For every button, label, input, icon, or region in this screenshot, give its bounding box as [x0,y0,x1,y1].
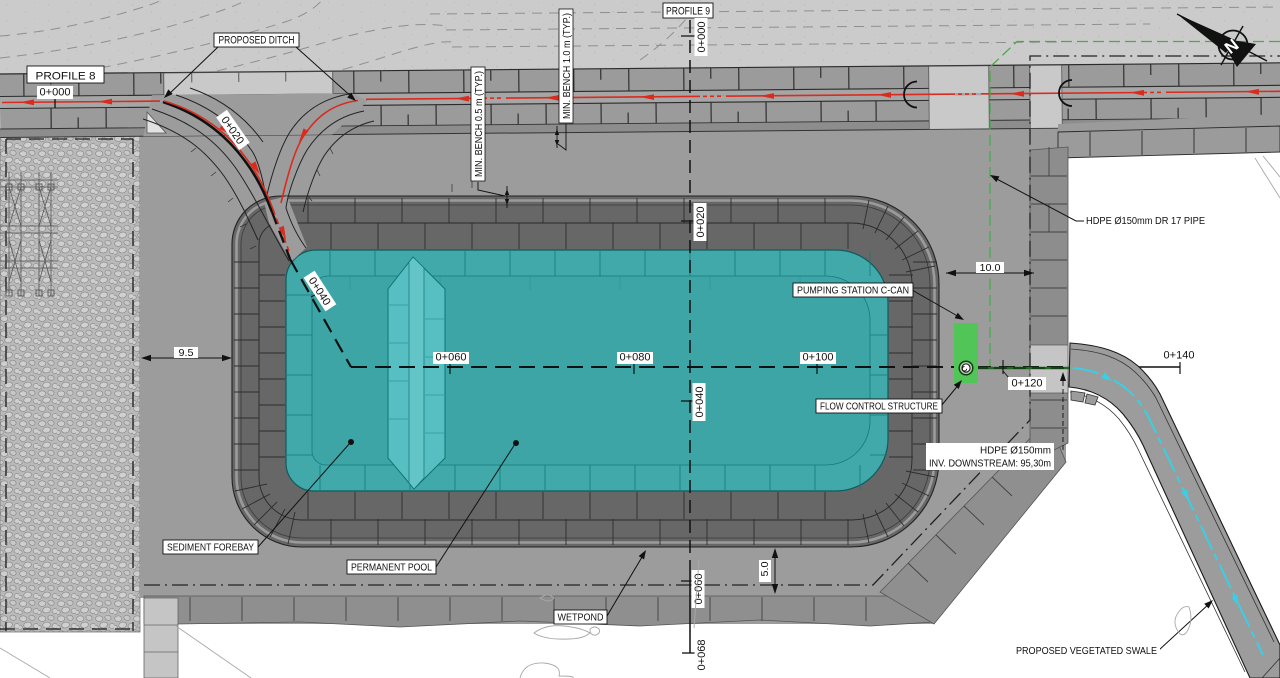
svg-text:5.0: 5.0 [759,561,771,576]
svg-text:PROFILE 9: PROFILE 9 [666,6,710,18]
svg-text:FLOW CONTROL STRUCTURE: FLOW CONTROL STRUCTURE [820,402,938,413]
svg-text:PERMANENT POOL: PERMANENT POOL [351,563,432,574]
svg-text:0+000: 0+000 [40,87,71,99]
svg-text:10.0: 10.0 [980,262,1001,274]
svg-text:0+100: 0+100 [803,352,834,364]
svg-text:0+080: 0+080 [620,352,651,364]
svg-text:0+020: 0+020 [695,207,707,238]
svg-text:PROPOSED VEGETATED SWALE: PROPOSED VEGETATED SWALE [1016,646,1157,657]
svg-text:PUMPING STATION C-CAN: PUMPING STATION C-CAN [797,286,909,297]
svg-text:HDPE Ø150mm: HDPE Ø150mm [980,446,1051,457]
svg-text:INV. DOWNSTREAM: 95,30m: INV. DOWNSTREAM: 95,30m [929,459,1051,470]
svg-text:MIN. BENCH 0.5 m (TYP.): MIN. BENCH 0.5 m (TYP.) [474,71,485,177]
svg-text:0+068: 0+068 [696,640,708,671]
svg-text:0+060: 0+060 [436,352,467,364]
svg-text:WETPOND: WETPOND [558,613,604,624]
svg-text:PROFILE 8: PROFILE 8 [36,71,96,83]
svg-text:0+040: 0+040 [694,387,706,418]
svg-text:0+140: 0+140 [1164,350,1195,362]
svg-text:MIN. BENCH 1.0 m (TYP.): MIN. BENCH 1.0 m (TYP.) [562,13,573,119]
svg-text:0+000: 0+000 [696,22,708,53]
svg-text:SEDIMENT FOREBAY: SEDIMENT FOREBAY [167,543,254,554]
svg-text:0+060: 0+060 [693,574,705,605]
svg-text:9.5: 9.5 [179,347,194,359]
svg-text:0+120: 0+120 [1012,378,1043,390]
svg-text:PROPOSED DITCH: PROPOSED DITCH [219,35,295,47]
svg-text:HDPE Ø150mm DR 17 PIPE: HDPE Ø150mm DR 17 PIPE [1086,216,1205,227]
